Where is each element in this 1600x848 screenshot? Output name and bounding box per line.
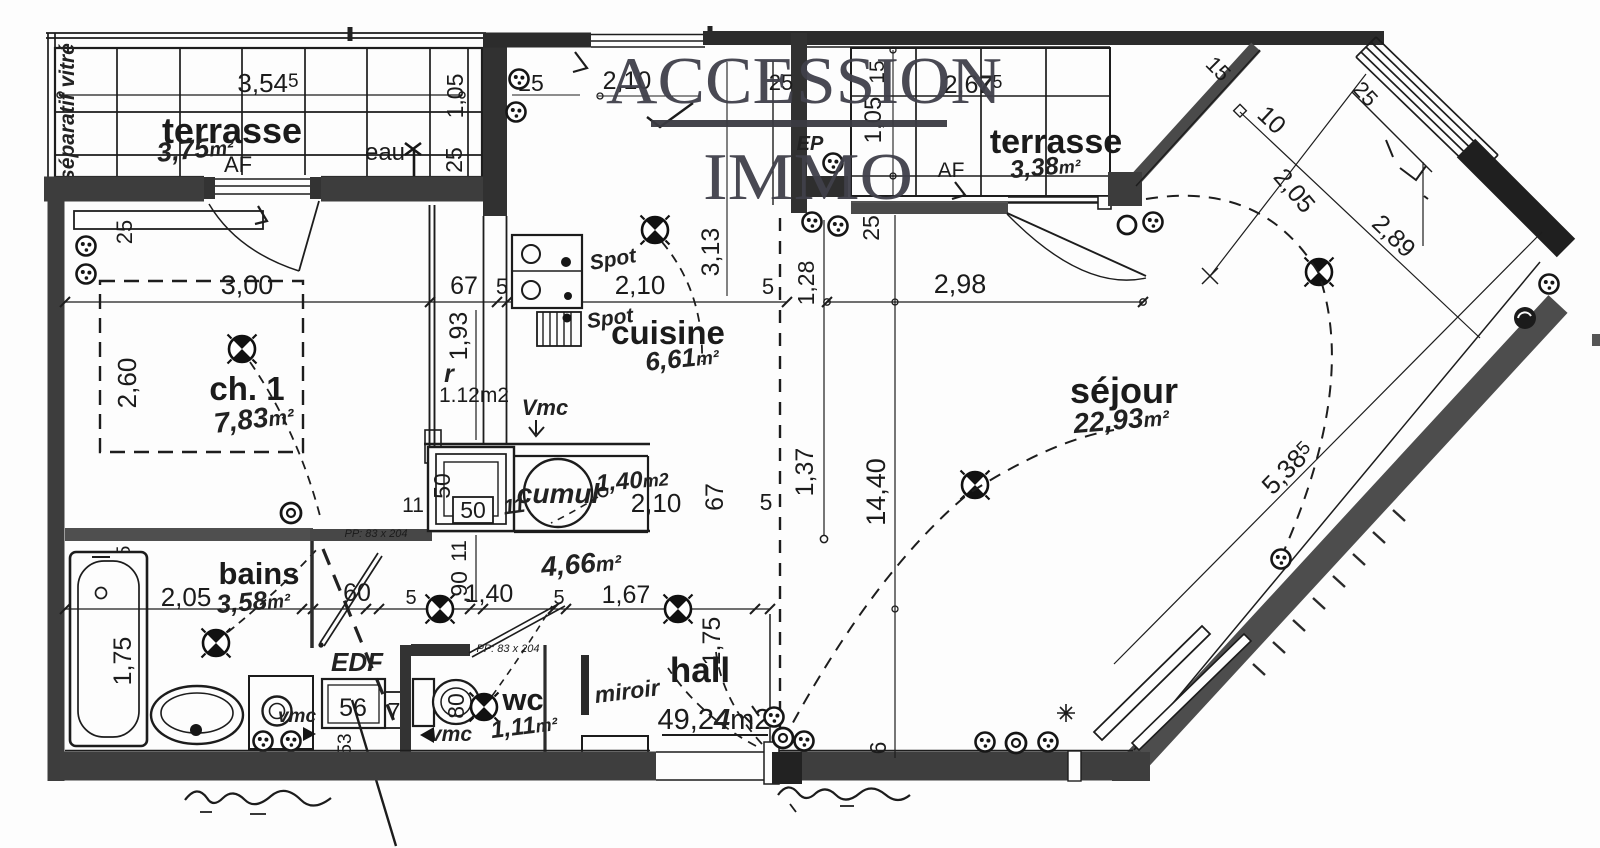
svg-text:1,75: 1,75 — [109, 637, 137, 686]
svg-text:5: 5 — [405, 587, 416, 609]
svg-text:53: 53 — [335, 733, 356, 754]
svg-text:60: 60 — [343, 579, 371, 607]
svg-text:3,13: 3,13 — [697, 228, 725, 277]
svg-text:cumul: cumul — [517, 478, 601, 509]
svg-text:25: 25 — [441, 147, 467, 173]
svg-text:1.12m2: 1.12m2 — [439, 384, 509, 407]
svg-text:2,98: 2,98 — [934, 269, 987, 299]
svg-text:1,28: 1,28 — [793, 261, 819, 306]
svg-text:80: 80 — [443, 693, 469, 719]
svg-text:2,05: 2,05 — [161, 582, 212, 612]
svg-text:ACCESSION: ACCESSION — [606, 44, 1002, 118]
svg-text:PP: 83 x 204: PP: 83 x 204 — [345, 528, 408, 540]
svg-text:1,93: 1,93 — [445, 312, 473, 361]
svg-text:séparatif vitré: séparatif vitré — [56, 43, 79, 181]
svg-text:Vmc: Vmc — [522, 395, 568, 420]
svg-text:50: 50 — [460, 497, 486, 523]
svg-text:PP: 83 x 204: PP: 83 x 204 — [477, 643, 540, 655]
svg-text:5: 5 — [760, 489, 773, 515]
svg-text:50: 50 — [429, 473, 455, 499]
svg-text:6: 6 — [865, 742, 891, 755]
svg-text:AF: AF — [224, 152, 252, 177]
svg-text:11: 11 — [402, 494, 424, 517]
svg-text:3,00: 3,00 — [221, 270, 274, 300]
svg-text:1,67: 1,67 — [602, 581, 651, 609]
svg-text:1,75: 1,75 — [698, 617, 726, 666]
svg-text:5: 5 — [762, 274, 774, 299]
svg-text:56: 56 — [339, 694, 367, 722]
svg-text:2,10: 2,10 — [631, 488, 682, 518]
svg-text:,90: ,90 — [446, 571, 472, 603]
svg-text:EDF: EDF — [331, 647, 384, 677]
svg-text:2,60: 2,60 — [112, 358, 142, 409]
svg-text:1,37: 1,37 — [791, 448, 819, 497]
svg-text:25: 25 — [112, 220, 137, 244]
svg-text:7: 7 — [388, 698, 401, 724]
svg-text:IMMO: IMMO — [703, 140, 913, 214]
svg-text:AF: AF — [938, 159, 965, 182]
svg-text:wc: wc — [501, 682, 543, 717]
svg-text:25: 25 — [858, 215, 884, 241]
svg-text:14,40: 14,40 — [861, 458, 891, 526]
svg-text:eau: eau — [365, 139, 405, 166]
svg-text:1,05: 1,05 — [442, 74, 468, 119]
svg-text:vmc: vmc — [430, 723, 472, 746]
svg-text:ch. 1: ch. 1 — [209, 370, 284, 407]
svg-text:2,10: 2,10 — [615, 270, 666, 300]
svg-text:67: 67 — [701, 483, 729, 511]
svg-text:vmc: vmc — [278, 706, 316, 727]
svg-text:67: 67 — [450, 272, 478, 300]
svg-text:11: 11 — [448, 540, 471, 562]
